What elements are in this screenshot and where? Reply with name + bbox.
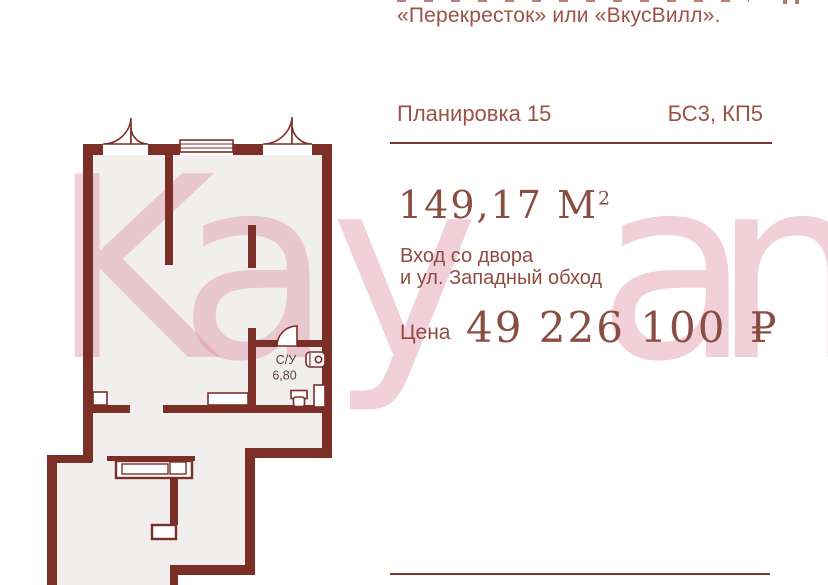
ruble-sign: ₽ xyxy=(750,303,777,352)
entrance-line: и ул. Западный обход xyxy=(400,267,602,289)
floorplan: С/У 6,80 xyxy=(0,0,828,585)
price-value: 49 226 100 ₽ xyxy=(466,303,777,352)
price-label: Цена xyxy=(400,321,451,345)
entrance-description: Вход со двора и ул. Западный обход xyxy=(400,245,602,289)
door-jamb xyxy=(314,385,325,407)
double-door-icon xyxy=(263,117,312,144)
door-leaf-icon xyxy=(277,326,297,346)
block-section-label: БС3, КП5 xyxy=(390,101,763,127)
area-number: 149,17 xyxy=(398,183,543,227)
window-icon xyxy=(180,140,233,152)
toilet-icon xyxy=(291,391,307,407)
fixtures xyxy=(93,117,325,539)
price-number: 49 226 100 xyxy=(466,303,726,352)
clipped-text-fragments xyxy=(397,0,749,2)
divider-line xyxy=(390,142,772,144)
bathroom-area-value: 6,80 xyxy=(272,369,296,383)
clipped-text-fragment xyxy=(783,0,787,4)
entrance-line: Вход со двора xyxy=(400,245,602,267)
divider-line xyxy=(390,573,770,575)
washbasin-icon xyxy=(306,352,325,367)
door-jamb xyxy=(93,392,107,405)
counter-top xyxy=(208,393,248,405)
clipped-text-fragment xyxy=(795,0,799,4)
kitchen-counter xyxy=(116,461,192,539)
intro-text: «Перекресток» или «ВкусВилл». xyxy=(397,4,721,28)
area-superscript: 2 xyxy=(598,187,610,209)
area-value: 149,17 М2 xyxy=(398,183,610,227)
listing-page: K a y a n xyxy=(0,0,828,585)
area-unit: М xyxy=(557,183,598,227)
double-door-icon xyxy=(103,118,148,144)
bathroom-label: С/У xyxy=(276,353,297,367)
